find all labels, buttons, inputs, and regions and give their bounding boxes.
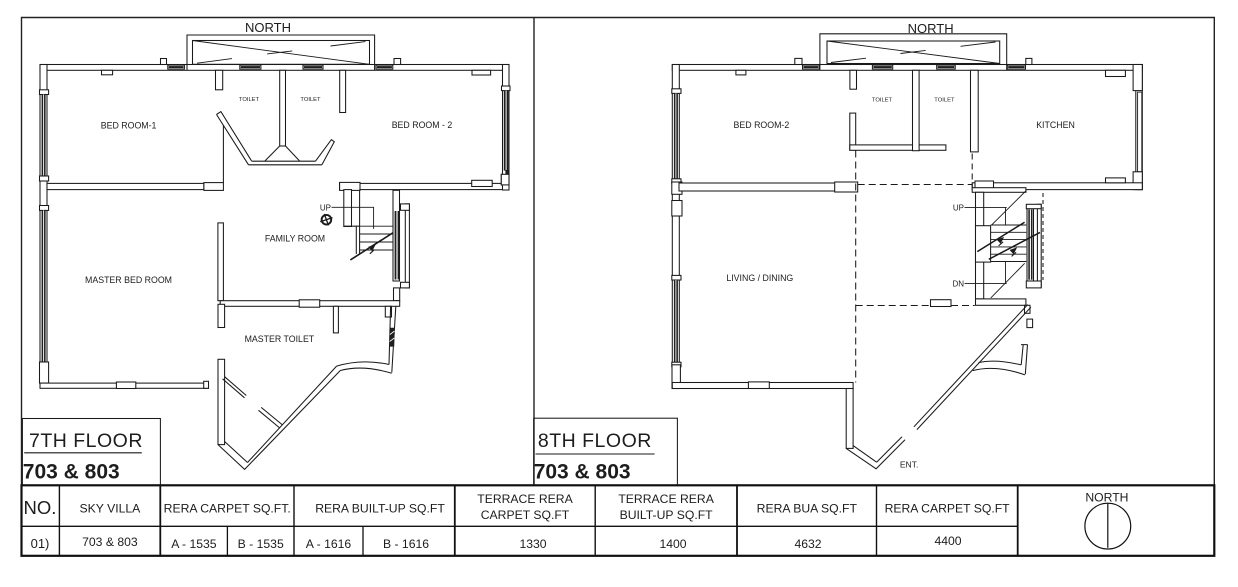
svg-text:UP: UP xyxy=(320,204,331,213)
svg-text:A - 1535: A - 1535 xyxy=(171,537,217,551)
svg-text:BED ROOM-1: BED ROOM-1 xyxy=(101,121,157,131)
svg-text:A - 1616: A - 1616 xyxy=(306,537,352,551)
svg-text:NO.: NO. xyxy=(24,497,57,518)
svg-text:SKY VILLA: SKY VILLA xyxy=(80,502,142,516)
svg-text:LIVING / DINING: LIVING / DINING xyxy=(726,273,793,283)
svg-text:FAMILY ROOM: FAMILY ROOM xyxy=(265,234,325,244)
svg-text:BED ROOM - 2: BED ROOM - 2 xyxy=(392,120,453,130)
svg-text:TOILET: TOILET xyxy=(300,97,321,103)
svg-text:01): 01) xyxy=(31,536,50,551)
svg-text:703 & 803: 703 & 803 xyxy=(23,461,120,484)
svg-text:703 & 803: 703 & 803 xyxy=(82,535,138,549)
svg-text:KITCHEN: KITCHEN xyxy=(1036,120,1075,130)
svg-text:B - 1616: B - 1616 xyxy=(383,537,429,551)
svg-text:NORTH: NORTH xyxy=(1085,491,1128,505)
svg-text:RERA CARPET SQ.FT.: RERA CARPET SQ.FT. xyxy=(164,502,291,516)
svg-text:RERA CARPET SQ.FT: RERA CARPET SQ.FT xyxy=(885,502,1011,516)
svg-text:1330: 1330 xyxy=(519,537,546,551)
svg-text:BUILT-UP SQ.FT: BUILT-UP SQ.FT xyxy=(620,508,714,522)
svg-text:TOILET: TOILET xyxy=(239,97,260,103)
svg-text:TOILET: TOILET xyxy=(872,98,893,104)
svg-text:CARPET SQ.FT: CARPET SQ.FT xyxy=(481,508,570,522)
svg-text:MASTER TOILET: MASTER TOILET xyxy=(245,334,315,344)
svg-text:TERRACE RERA: TERRACE RERA xyxy=(477,492,573,506)
svg-text:NORTH: NORTH xyxy=(245,20,291,35)
svg-text:4400: 4400 xyxy=(934,534,961,548)
svg-text:ENT.: ENT. xyxy=(900,460,918,470)
svg-text:4632: 4632 xyxy=(794,537,821,551)
svg-text:TERRACE RERA: TERRACE RERA xyxy=(618,492,714,506)
svg-text:RERA BUA SQ.FT: RERA BUA SQ.FT xyxy=(757,502,858,516)
svg-text:BED ROOM-2: BED ROOM-2 xyxy=(734,120,790,130)
svg-text:703 & 803: 703 & 803 xyxy=(534,461,631,484)
svg-text:B - 1535: B - 1535 xyxy=(238,537,284,551)
svg-text:MASTER BED ROOM: MASTER BED ROOM xyxy=(85,275,172,285)
svg-text:DN: DN xyxy=(952,280,964,289)
svg-text:TOILET: TOILET xyxy=(934,98,955,104)
svg-text:UP: UP xyxy=(953,204,964,213)
svg-text:7TH FLOOR: 7TH FLOOR xyxy=(29,430,143,452)
svg-text:8TH FLOOR: 8TH FLOOR xyxy=(538,430,652,452)
svg-text:1400: 1400 xyxy=(659,537,686,551)
svg-text:RERA BUILT-UP SQ.FT: RERA BUILT-UP SQ.FT xyxy=(315,502,445,516)
